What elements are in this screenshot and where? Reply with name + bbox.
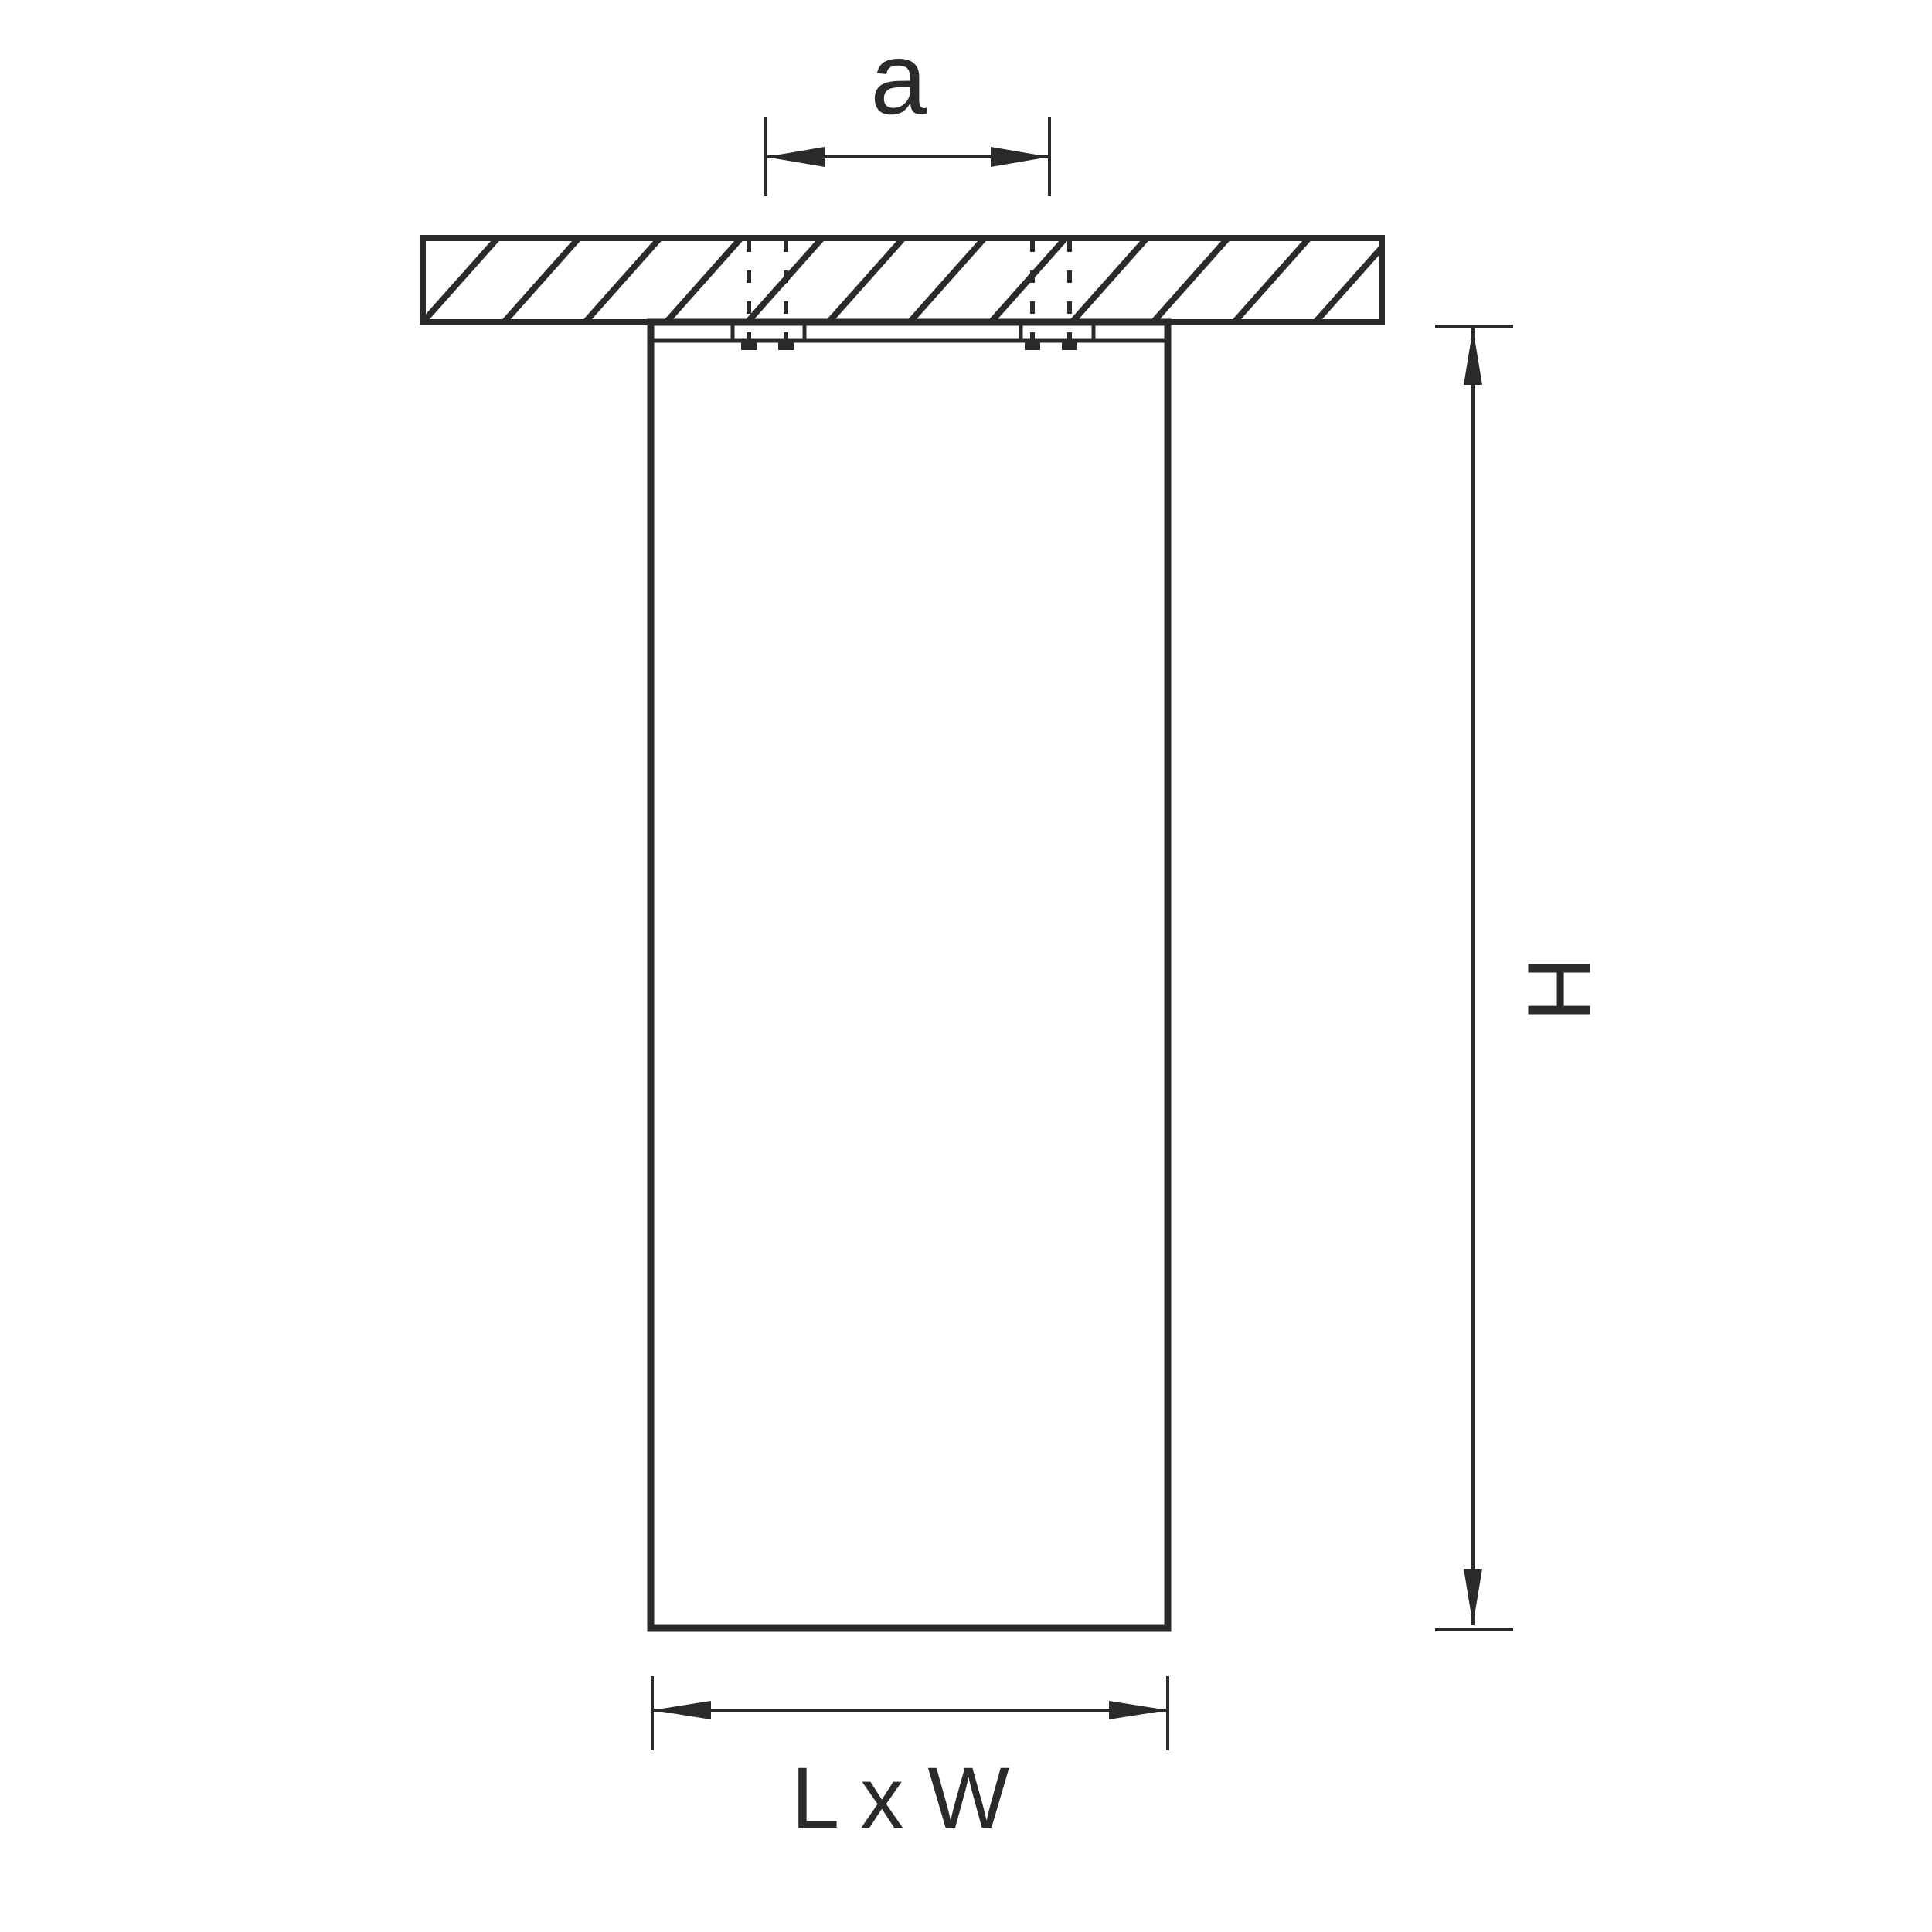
screw-head-tab [778, 341, 794, 350]
screw-head-tab [1025, 341, 1040, 350]
screw-head-tab [1062, 341, 1077, 350]
dimension-a-arrowhead-left [766, 147, 825, 167]
dimension-h-arrowhead-top [1464, 328, 1482, 385]
dimension-h-arrowhead-bottom [1464, 1569, 1482, 1625]
dimension-lxw: L x W [652, 1676, 1168, 1846]
luminaire-body [651, 322, 1168, 1628]
dimension-lxw-label: L x W [791, 1750, 1009, 1846]
drawing-root: a H L x W [423, 22, 1609, 1846]
dimension-h-label: H [1509, 957, 1609, 1022]
dimension-a-label: a [870, 22, 927, 135]
dimension-h: H [1435, 326, 1609, 1630]
screw-head-tab [741, 341, 757, 350]
dimension-lxw-arrowhead-left [652, 1701, 711, 1719]
luminaire-dimension-drawing: a H L x W [0, 0, 1932, 1932]
dimension-a: a [766, 22, 1049, 196]
dimension-a-arrowhead-right [991, 147, 1049, 167]
dimension-lxw-arrowhead-right [1109, 1701, 1168, 1719]
ceiling-section [423, 238, 1390, 322]
drawing-content: a H L x W [423, 22, 1609, 1846]
drawing-canvas: a H L x W [0, 0, 1932, 1932]
